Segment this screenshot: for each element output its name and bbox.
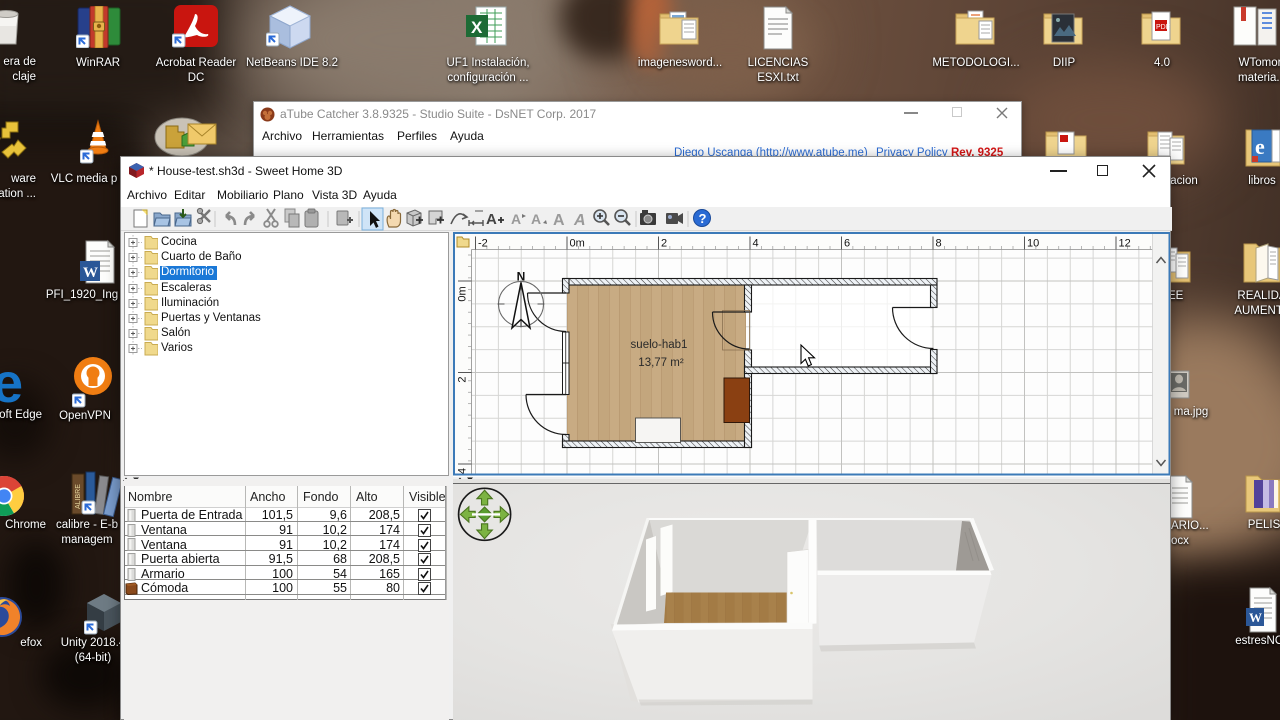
svg-text:A: A [573, 212, 586, 229]
svg-text:12: 12 [1119, 238, 1131, 250]
svg-text:N: N [517, 270, 526, 284]
svg-text:8: 8 [936, 238, 942, 250]
svg-text:A: A [486, 211, 497, 228]
svg-text:X: X [471, 18, 483, 37]
svg-text:0m: 0m [570, 238, 585, 250]
svg-text:W: W [1249, 610, 1262, 625]
svg-text:A: A [553, 212, 565, 229]
svg-text:4: 4 [457, 468, 469, 474]
svg-text:10: 10 [1027, 238, 1039, 250]
svg-text:A: A [531, 211, 541, 227]
svg-text:ALIBRE: ALIBRE [75, 484, 82, 509]
svg-text:6: 6 [844, 238, 850, 250]
svg-text:-2: -2 [478, 238, 488, 250]
svg-text:e: e [0, 352, 23, 410]
svg-text:2: 2 [661, 238, 667, 250]
svg-text:4: 4 [753, 238, 759, 250]
svg-text:2: 2 [457, 376, 469, 382]
svg-text:A: A [511, 211, 521, 227]
svg-text:?: ? [699, 211, 707, 226]
svg-text:e: e [1255, 134, 1265, 159]
svg-text:suelo-hab1: suelo-hab1 [631, 339, 688, 351]
svg-text:0m: 0m [457, 286, 469, 301]
svg-text:PDF: PDF [1156, 24, 1170, 31]
svg-text:13,77 m²: 13,77 m² [638, 357, 684, 369]
svg-text:W: W [83, 265, 98, 281]
